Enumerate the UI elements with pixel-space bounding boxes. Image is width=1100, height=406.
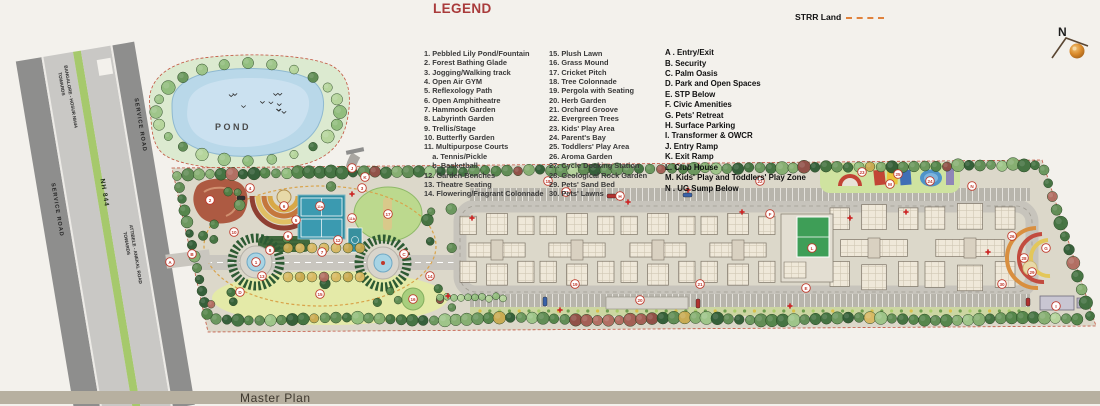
- tree-highlight: [291, 66, 295, 70]
- tree-highlight: [284, 273, 289, 278]
- tree-highlight: [235, 201, 240, 206]
- hydrant-bar: [905, 209, 907, 214]
- tree-highlight: [1087, 313, 1091, 317]
- legend-item: E. STP Below: [665, 90, 855, 100]
- tree-highlight: [550, 315, 554, 319]
- building-cluster: [925, 204, 1015, 291]
- legend-number-marker-label: 19: [572, 282, 578, 287]
- tree-highlight: [332, 273, 337, 278]
- building-wing: [648, 264, 669, 285]
- tree-highlight: [293, 167, 299, 173]
- tree-highlight: [375, 314, 380, 319]
- building-wing: [460, 261, 476, 282]
- tree-highlight: [767, 316, 773, 322]
- tree-highlight: [211, 221, 215, 225]
- building-core: [491, 240, 503, 260]
- tree-highlight: [283, 169, 288, 174]
- legend-number-marker: 2: [206, 196, 215, 205]
- legend-number-marker-label: 12: [335, 238, 341, 243]
- tree-highlight: [1081, 298, 1087, 304]
- tree-highlight: [156, 96, 160, 100]
- tree-highlight: [397, 316, 402, 321]
- legend-number-marker-label: 26: [1009, 234, 1015, 239]
- tree-highlight: [437, 295, 440, 298]
- tree-highlight: [395, 297, 399, 301]
- legend-item: 9. Trellis/Stage: [424, 124, 550, 133]
- tree-highlight: [165, 133, 169, 137]
- legend-item: G. Pets' Retreat: [665, 111, 855, 121]
- tree-highlight: [932, 317, 937, 322]
- tree-highlight: [308, 244, 313, 249]
- legend-item: 29. Pets' Sand Bed: [549, 180, 665, 189]
- shrub: [537, 309, 540, 312]
- tree-highlight: [179, 196, 183, 200]
- legend-number-marker-label: 10: [231, 230, 237, 235]
- building-core: [964, 238, 976, 258]
- tree-highlight: [1019, 160, 1025, 166]
- tree-highlight: [296, 273, 301, 278]
- tree-highlight: [500, 296, 503, 299]
- road-culvert-notch: [97, 58, 113, 76]
- hydrant-bar: [789, 303, 791, 308]
- pond-park: POND: [149, 55, 349, 169]
- shrub: [576, 309, 579, 312]
- tree-highlight: [1078, 285, 1083, 290]
- building-wing: [925, 207, 945, 229]
- legend-item: 22. Evergreen Trees: [549, 114, 665, 123]
- legend-letter-marker-label: G: [1044, 246, 1048, 251]
- tree-highlight: [986, 315, 991, 320]
- shrub: [547, 309, 550, 312]
- tree-highlight: [335, 107, 341, 113]
- legend-item: J. Entry Ramp: [665, 142, 855, 152]
- tree-highlight: [228, 289, 232, 293]
- legend-letter-marker: G: [1042, 244, 1051, 253]
- building-wing: [460, 216, 476, 234]
- tree-highlight: [225, 188, 229, 192]
- legend-letter-marker: K: [361, 173, 370, 182]
- tree-highlight: [876, 313, 882, 319]
- legend-item: 30. Pets' Lawns: [549, 189, 665, 198]
- shrub: [812, 309, 815, 312]
- legend-item: 28. Geological Rock Garden: [549, 171, 665, 180]
- surface-parking-bottom: [470, 294, 1030, 307]
- shrub: [910, 309, 913, 312]
- legend-item: 25. Toddlers' Play Area: [549, 142, 665, 151]
- strr-land-label: STRR Land: [795, 12, 841, 22]
- legend-number-marker: 6: [280, 202, 289, 211]
- shrub: [890, 309, 893, 312]
- tree-highlight: [245, 317, 249, 321]
- car: [696, 299, 700, 308]
- club-house: [781, 214, 833, 282]
- tree-highlight: [932, 163, 937, 168]
- legend-number-marker: 19: [571, 280, 580, 289]
- legend-letter-marker: F: [766, 210, 775, 219]
- tree-highlight: [188, 241, 192, 245]
- tree-highlight: [637, 315, 642, 320]
- tree-highlight: [233, 315, 239, 321]
- tree-highlight: [517, 314, 521, 318]
- tree-highlight: [680, 313, 686, 319]
- building-wing: [899, 261, 918, 286]
- building-cluster: [621, 213, 695, 285]
- tree-highlight: [811, 315, 816, 320]
- compass-n-label: N: [1058, 25, 1067, 39]
- shrub: [841, 309, 844, 312]
- shrub: [625, 309, 628, 312]
- tree-highlight: [415, 167, 420, 172]
- tree-highlight: [423, 215, 428, 220]
- tree-highlight: [288, 315, 294, 321]
- building-core: [868, 238, 880, 258]
- tree-highlight: [736, 316, 740, 320]
- tree-highlight: [887, 162, 893, 168]
- tree-highlight: [327, 183, 331, 187]
- tree-highlight: [220, 61, 225, 66]
- hydrant-bar: [471, 215, 473, 220]
- shrub: [978, 309, 981, 312]
- legend-number-marker-label: 25: [895, 172, 901, 177]
- tree-highlight: [179, 73, 184, 78]
- tree-highlight: [440, 315, 446, 321]
- tree-highlight: [323, 132, 329, 138]
- legend-item: 20. Herb Garden: [549, 96, 665, 105]
- tree-highlight: [211, 236, 215, 240]
- legend-letter-marker: N: [968, 182, 977, 191]
- legend-letter-marker: A: [166, 258, 175, 267]
- legend-letter-marker: E: [802, 284, 811, 293]
- tree-highlight: [1049, 193, 1054, 198]
- tree-highlight: [333, 120, 338, 125]
- building-wing: [925, 262, 945, 288]
- shrub: [831, 309, 834, 312]
- tree-highlight: [183, 170, 189, 176]
- shrub: [586, 309, 589, 312]
- shrub: [929, 309, 932, 312]
- legend-item: B. Security: [665, 59, 855, 69]
- tree-highlight: [538, 314, 544, 320]
- legend-item: K. Exit Ramp: [665, 152, 855, 162]
- tree-highlight: [195, 170, 200, 175]
- shrub: [772, 309, 775, 312]
- tree-highlight: [208, 301, 212, 305]
- building-wing: [728, 213, 749, 234]
- tree-highlight: [964, 316, 969, 321]
- building-wing: [487, 213, 508, 234]
- tree-highlight: [974, 315, 980, 321]
- tree-highlight: [713, 314, 719, 320]
- legend-item: 15. Plush Lawn: [549, 49, 665, 58]
- tree-highlight: [311, 315, 315, 319]
- tree-highlight: [458, 295, 461, 298]
- tree-highlight: [299, 314, 304, 319]
- shrub: [606, 309, 609, 312]
- tree-highlight: [174, 173, 178, 177]
- tree-highlight: [998, 162, 1003, 167]
- tree-highlight: [332, 313, 337, 318]
- legend-item: D. Park and Open Spaces: [665, 79, 855, 89]
- tree-highlight: [1051, 314, 1056, 319]
- tree-highlight: [344, 244, 349, 249]
- tree-highlight: [428, 209, 431, 212]
- building-cluster: [701, 213, 775, 285]
- legend-number-marker: 21: [696, 280, 705, 289]
- tree-highlight: [493, 294, 496, 297]
- legend-number-marker: 3: [358, 184, 367, 193]
- shrub: [518, 309, 521, 312]
- legend-item: 18. Tree Colonnade: [549, 77, 665, 86]
- legend-column-lettered: A . Entry/ExitB. SecurityC. Palm OasisD.…: [665, 17, 855, 194]
- legend-column-2: 15. Plush Lawn16. Grass Mound17. Cricket…: [549, 21, 665, 199]
- tree-highlight: [212, 315, 217, 320]
- legend-item: 2. Forest Bathing Glade: [424, 58, 550, 67]
- tree-highlight: [261, 169, 266, 174]
- tree-highlight: [183, 218, 188, 223]
- tree-highlight: [393, 167, 398, 172]
- tree-highlight: [382, 168, 387, 173]
- tree-highlight: [625, 315, 631, 321]
- tree-highlight: [669, 313, 675, 319]
- tree-highlight: [1007, 313, 1013, 319]
- shrub: [998, 309, 1001, 312]
- legend-number-marker-label: 24: [927, 179, 933, 184]
- building-wing: [728, 264, 749, 285]
- tree-highlight: [1040, 166, 1045, 171]
- tree-highlight: [268, 156, 272, 160]
- tree-highlight: [561, 316, 566, 321]
- building-wing: [621, 216, 637, 234]
- shrub: [792, 309, 795, 312]
- tree-highlight: [953, 160, 959, 166]
- car: [237, 196, 245, 200]
- hydrant-bar: [351, 191, 353, 196]
- legend-number-marker: 7: [318, 248, 327, 257]
- tree-highlight: [988, 161, 992, 165]
- building-wing: [759, 216, 775, 234]
- legend-letter-marker: I: [1052, 302, 1061, 311]
- hydrant-bar: [627, 199, 629, 204]
- legend-number-marker-label: 3: [361, 186, 364, 191]
- legend-column-1: 1. Pebbled Lily Pond/Fountain2. Forest B…: [424, 21, 550, 199]
- legend-item: a. Tennis/Pickle: [424, 152, 550, 161]
- shrub: [488, 309, 491, 312]
- building-wing: [679, 216, 695, 234]
- legend-item: C. Palm Oasis: [665, 69, 855, 79]
- legend-number-marker-label: 28: [1021, 256, 1027, 261]
- tree-highlight: [193, 264, 197, 268]
- tree-highlight: [365, 314, 370, 319]
- building-wing: [598, 216, 614, 234]
- building-core: [732, 240, 744, 260]
- shrub: [851, 309, 854, 312]
- tree-highlight: [822, 314, 827, 319]
- legend-item: b. Basketball: [424, 161, 550, 170]
- building-cluster: [460, 213, 534, 285]
- tree-highlight: [495, 313, 501, 319]
- tree-highlight: [855, 314, 859, 318]
- shrub: [616, 309, 619, 312]
- building-wing: [862, 265, 887, 290]
- tree-highlight: [431, 317, 435, 321]
- building-wing: [862, 205, 887, 230]
- shrub: [988, 309, 991, 312]
- legend-item: 14. Flowering/Fragrant Colonnade: [424, 189, 550, 198]
- tree-highlight: [315, 168, 321, 174]
- tree-highlight: [249, 169, 255, 175]
- tree-highlight: [356, 244, 361, 249]
- legend-letter-marker-label: E: [804, 286, 807, 291]
- tree-highlight: [180, 206, 185, 211]
- tree-highlight: [196, 276, 200, 280]
- tree-highlight: [268, 61, 273, 66]
- legend-number-marker: 9: [284, 232, 293, 241]
- compass-ball: [1070, 44, 1085, 59]
- tree-highlight: [486, 296, 489, 299]
- tree-highlight: [920, 316, 926, 322]
- legend-item: 1. Pebbled Lily Pond/Fountain: [424, 49, 550, 58]
- tree-highlight: [451, 295, 454, 298]
- car: [543, 297, 547, 306]
- legend-number-marker: 14: [426, 272, 435, 281]
- legend-item: 3. Jogging/Walking track: [424, 68, 550, 77]
- legend-number-marker: 13: [258, 272, 267, 281]
- legend-number-marker: 11a: [316, 202, 325, 211]
- tree-highlight: [789, 315, 795, 321]
- tree-highlight: [179, 143, 183, 147]
- hydrant-bar: [849, 215, 851, 220]
- tree-highlight: [186, 230, 190, 234]
- legend-item: I. Transformer & OWCR: [665, 131, 855, 141]
- tree-highlight: [724, 315, 729, 320]
- tree-highlight: [332, 244, 337, 249]
- legend-letter-marker: J: [348, 164, 357, 173]
- tree-highlight: [176, 184, 181, 189]
- tree-highlight: [921, 162, 926, 167]
- tree-highlight: [1068, 258, 1074, 264]
- tree-highlight: [844, 313, 849, 318]
- building-wing: [701, 216, 717, 234]
- tree-highlight: [943, 163, 947, 167]
- building-wing: [995, 207, 1015, 229]
- tree-highlight: [691, 313, 696, 318]
- tree-highlight: [343, 314, 347, 318]
- tree-highlight: [201, 299, 206, 304]
- legend-item: 10. Butterfly Garden: [424, 133, 550, 142]
- car: [1026, 298, 1030, 306]
- tree-highlight: [308, 273, 313, 278]
- building-cluster: [540, 213, 614, 285]
- tree-highlight: [230, 299, 234, 303]
- tree-highlight: [756, 315, 762, 321]
- tree-highlight: [227, 169, 233, 175]
- tree-highlight: [473, 314, 478, 319]
- tree-highlight: [582, 316, 587, 321]
- legend-number-marker: 24: [926, 177, 935, 186]
- legend-number-marker-label: 5: [295, 218, 298, 223]
- building-wing: [487, 264, 508, 285]
- shrub: [968, 309, 971, 312]
- building-wing: [957, 265, 982, 291]
- tree-highlight: [151, 107, 157, 113]
- building-wing: [899, 208, 918, 230]
- tree-highlight: [1073, 272, 1078, 277]
- legend-letter-marker: D: [236, 288, 245, 297]
- tree-highlight: [309, 73, 314, 78]
- tree-highlight: [877, 163, 881, 167]
- legend-number-marker: 30: [998, 280, 1007, 289]
- building-wing: [567, 213, 588, 234]
- building-wing: [621, 261, 637, 282]
- building-core: [652, 240, 664, 260]
- shrub: [782, 309, 785, 312]
- tree-highlight: [942, 316, 948, 322]
- legend-number-marker-label: 23: [859, 170, 865, 175]
- shrub: [959, 309, 962, 312]
- tree-highlight: [371, 168, 376, 173]
- legend-item: 13. Theatre Seating: [424, 180, 550, 189]
- tree-highlight: [1018, 313, 1024, 319]
- legend-letter-marker: M: [886, 180, 895, 189]
- legend-item: L. Club House: [665, 163, 855, 173]
- legend-number-marker-label: 20: [637, 298, 643, 303]
- shrub: [596, 309, 599, 312]
- tree-highlight: [976, 161, 981, 166]
- plan-title: Master Plan: [240, 391, 311, 405]
- legend-number-marker-label: 7: [321, 250, 324, 255]
- tree-highlight: [284, 244, 289, 249]
- tree-highlight: [320, 273, 325, 278]
- legend-heading: LEGEND: [433, 1, 492, 16]
- legend-letter-marker-label: J: [351, 166, 354, 171]
- legend-number-marker-label: 6: [283, 204, 286, 209]
- tree-highlight: [1055, 218, 1061, 224]
- legend-item: 24. Parent's Bay: [549, 133, 665, 142]
- hydrant-bar: [987, 249, 989, 254]
- tree-highlight: [484, 314, 489, 319]
- legend-letter-marker-label: F: [769, 212, 772, 217]
- tree-highlight: [359, 167, 365, 173]
- tree-highlight: [1065, 246, 1070, 251]
- legend-item: 11. Multipurpose Courts: [424, 142, 550, 151]
- hydrant-bar: [741, 209, 743, 214]
- legend-letter-marker-label: M: [888, 182, 892, 187]
- tree-highlight: [244, 59, 249, 64]
- shrub: [919, 309, 922, 312]
- tree-highlight: [353, 313, 359, 319]
- tree-highlight: [1061, 233, 1065, 237]
- tree-highlight: [594, 317, 599, 322]
- legend-number-marker: 17: [384, 210, 393, 219]
- legend-number-marker: 5: [292, 216, 301, 225]
- tree-highlight: [953, 316, 958, 321]
- tree-highlight: [910, 163, 915, 168]
- tree-highlight: [163, 82, 169, 88]
- legend-item: 17. Cricket Pitch: [549, 68, 665, 77]
- legend-number-marker-label: 14: [427, 274, 433, 279]
- tree-highlight: [387, 288, 390, 291]
- tree-highlight: [326, 166, 332, 172]
- tree-highlight: [435, 285, 439, 289]
- tree-highlight: [256, 317, 260, 321]
- legend-item: 4. Open Air GYM: [424, 77, 550, 86]
- shrub: [949, 309, 952, 312]
- building-wing: [759, 261, 775, 282]
- tree-highlight: [747, 316, 751, 320]
- tree-highlight: [427, 238, 431, 242]
- legend-item: 27. Cycle Docking Station: [549, 161, 665, 170]
- tree-highlight: [1073, 315, 1078, 320]
